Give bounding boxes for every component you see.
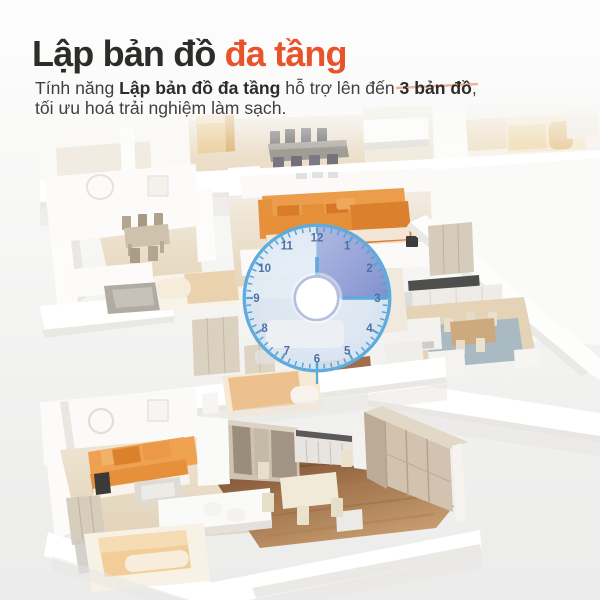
svg-text:6: 6 <box>314 354 320 366</box>
svg-text:11: 11 <box>281 241 294 253</box>
svg-text:1: 1 <box>344 241 351 253</box>
svg-text:5: 5 <box>344 345 351 357</box>
svg-text:7: 7 <box>284 345 290 357</box>
svg-text:3: 3 <box>374 293 380 305</box>
svg-text:4: 4 <box>366 323 373 335</box>
svg-text:12: 12 <box>311 233 324 245</box>
svg-text:2: 2 <box>366 263 372 275</box>
svg-text:8: 8 <box>261 323 268 335</box>
svg-text:10: 10 <box>258 263 271 275</box>
svg-text:9: 9 <box>253 293 259 305</box>
